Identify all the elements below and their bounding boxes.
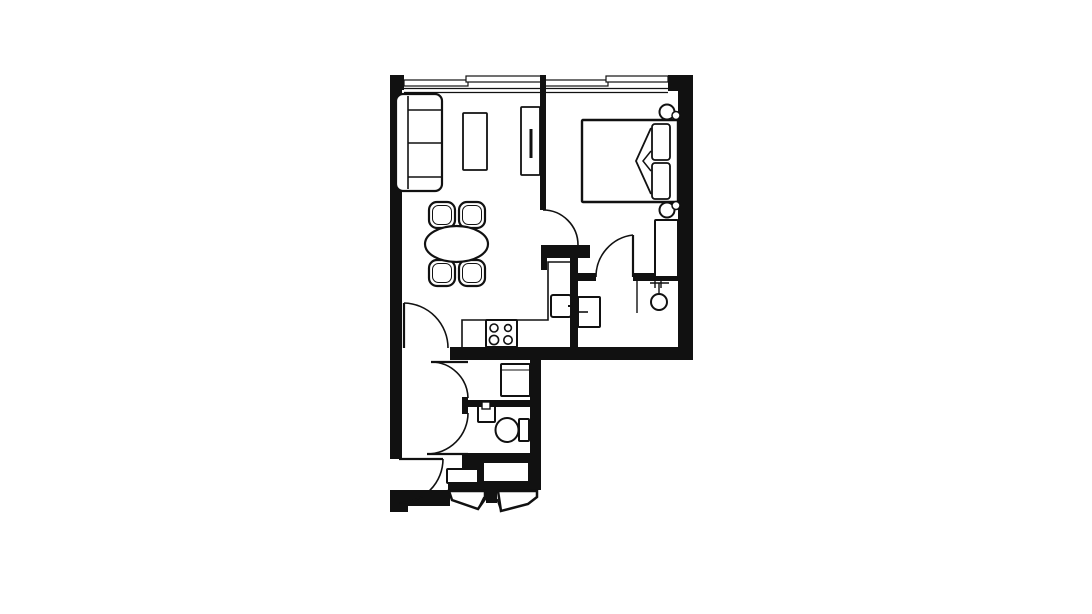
window-frame-living-1 xyxy=(404,80,468,86)
coffee-table xyxy=(463,113,487,170)
bedroom-dresser xyxy=(655,220,678,277)
page xyxy=(0,0,1092,614)
wall-closet-left xyxy=(578,273,596,281)
dining-chair-inner-bl xyxy=(433,264,452,283)
stove-burner-tr xyxy=(505,325,512,332)
closet-rail-circle xyxy=(651,294,667,310)
door-closet-arc xyxy=(596,235,633,277)
wall-bottom-left-corner xyxy=(390,497,408,512)
stove-burner-br xyxy=(504,336,512,344)
toilet-bowl xyxy=(496,418,519,442)
wall-bath-bottom-ext xyxy=(462,453,478,468)
dining-table xyxy=(425,226,488,262)
wall-lower-right xyxy=(530,360,541,490)
entry-closet-right xyxy=(498,491,537,511)
entry-shoe-cabinet xyxy=(447,469,478,483)
stove-burner-tl xyxy=(490,324,498,332)
door-hall-arc xyxy=(404,303,448,348)
wall-closet-divider xyxy=(486,482,497,503)
wall-kitchen-top-leg xyxy=(541,245,547,270)
wall-hall-stub xyxy=(462,397,468,414)
utility-appliance xyxy=(501,364,530,396)
dining-chair-inner-br xyxy=(463,264,482,283)
wall-kitchen-top xyxy=(541,245,590,258)
door-utility-arc xyxy=(431,362,468,398)
dining-chair-inner-tr xyxy=(463,206,482,225)
dining-chair-inner-tl xyxy=(433,206,452,225)
shaft-void xyxy=(484,463,528,481)
bedside-lamp-top-small xyxy=(672,112,680,120)
floor-plan-svg xyxy=(0,0,1092,614)
window-frame-bedroom-2 xyxy=(606,76,668,82)
bed-pillow-top xyxy=(652,124,670,160)
window-frame-living-2 xyxy=(466,76,543,82)
bedside-lamp-bottom-small xyxy=(672,202,680,210)
bed-pillow-bottom xyxy=(652,163,670,199)
stove-burner-bl xyxy=(489,335,498,344)
toilet-tank xyxy=(519,419,529,441)
wall-right xyxy=(678,75,693,360)
wall-room-divider xyxy=(540,75,546,210)
window-frame-bedroom-1 xyxy=(545,80,608,86)
door-bedroom-arc xyxy=(543,210,578,245)
bathroom-sink-tap xyxy=(482,402,490,409)
door-bathroom-arc xyxy=(427,413,468,454)
